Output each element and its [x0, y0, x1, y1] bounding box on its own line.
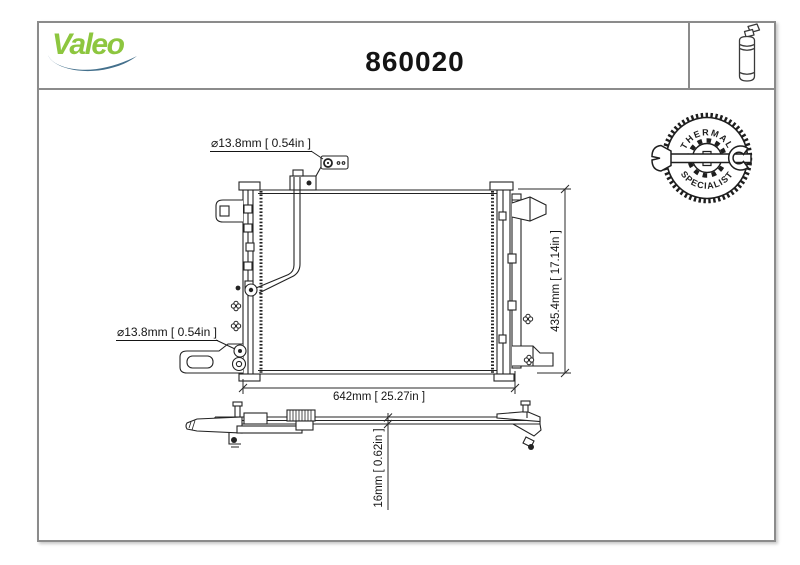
dimension-height: 435.4mm [ 17.14in ] [550, 230, 562, 332]
dimension-width: 642mm [ 25.27in ] [333, 391, 425, 403]
annotation-port-top: ⌀13.8mm [ 0.54in ] [210, 137, 312, 152]
annotation-port-left: ⌀13.8mm [ 0.54in ] [116, 326, 218, 341]
condenser-side-view [186, 401, 541, 450]
dimension-depth: 16mm [ 0.62in ] [373, 428, 385, 507]
spec-sheet: Valeo 860020 THERMAL SPECIALIST [0, 0, 800, 565]
condenser-front-view [180, 156, 553, 381]
technical-drawing [0, 0, 800, 565]
